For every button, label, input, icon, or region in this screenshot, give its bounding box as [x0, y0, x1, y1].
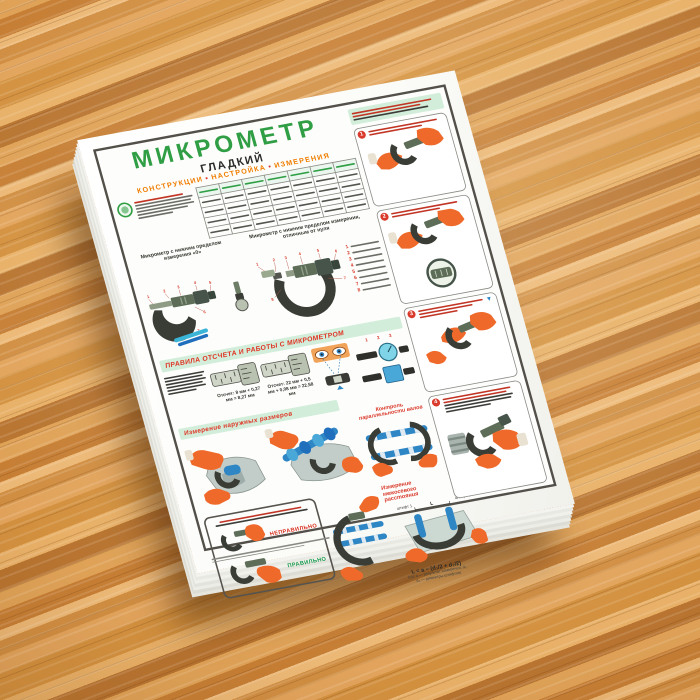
photo-scene: { "poster": { "title": "МИКРОМЕТР", "tit…	[0, 0, 700, 700]
svg-text:3: 3	[284, 255, 288, 260]
micrometer-diagram-nonzero: 1 2 3 4 5 6 7 8	[238, 234, 360, 339]
instruction-panel-2: 2	[376, 194, 495, 305]
svg-text:5: 5	[208, 280, 212, 285]
svg-text:1: 1	[146, 294, 150, 299]
glove-micrometer-part-icon	[438, 401, 538, 481]
svg-text:штифт 1: штифт 1	[396, 503, 413, 511]
svg-text:1: 1	[255, 261, 259, 266]
svg-text:L: L	[430, 501, 435, 507]
panel-number: 4	[431, 398, 441, 407]
eyes-sightline-icon	[309, 341, 361, 393]
svg-text:6: 6	[334, 248, 338, 253]
publisher-emblem	[115, 201, 134, 218]
svg-text:8: 8	[270, 296, 274, 301]
svg-text:6: 6	[203, 309, 207, 314]
instruction-panel-3: 3 ▼	[402, 291, 518, 393]
parallel-shafts-scene	[358, 410, 442, 483]
svg-text:7: 7	[343, 275, 347, 280]
panel-number: 3	[406, 310, 416, 319]
svg-text:4: 4	[193, 280, 197, 285]
measuring-housing-scene	[182, 429, 279, 515]
instruction-panel-1: 1	[353, 112, 468, 208]
svg-text:4: 4	[298, 251, 302, 256]
svg-text:2: 2	[163, 288, 167, 293]
svg-text:3: 3	[177, 284, 181, 289]
down-arrow-icon: ▼	[485, 295, 493, 302]
camshaft-measure-scene	[262, 412, 371, 500]
label-wrong: НЕПРАВИЛЬНО	[269, 523, 318, 537]
poster-frame: МИКРОМЕТР ГЛАДКИЙ КОНСТРУКЦИИ•НАСТРОЙКА•…	[93, 84, 557, 551]
svg-text:2: 2	[272, 257, 276, 262]
label-right: ПРАВИЛЬНО	[285, 557, 327, 570]
svg-text:5: 5	[316, 247, 320, 252]
rules-text	[163, 368, 209, 396]
poster-pad: МИКРОМЕТР ГЛАДКИЙ КОНСТРУКЦИИ•НАСТРОЙКА•…	[77, 70, 575, 573]
